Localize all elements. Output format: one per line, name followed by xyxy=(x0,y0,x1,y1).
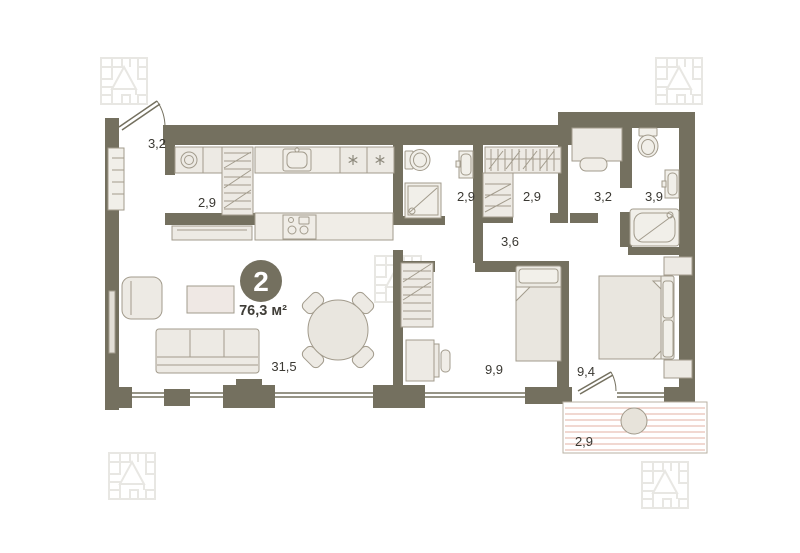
rooms-count: 2 xyxy=(253,266,269,297)
study-chair xyxy=(580,158,607,171)
washing-machine xyxy=(175,147,203,173)
developer-maze-logo-bottom-left xyxy=(109,453,155,499)
stove xyxy=(283,215,316,239)
entrance-door xyxy=(119,101,165,130)
balcony-table xyxy=(621,408,647,434)
study-desk xyxy=(572,128,622,161)
coffee-table xyxy=(187,286,234,313)
area-label-corridor: 3,6 xyxy=(501,234,519,249)
dining-table xyxy=(300,290,375,369)
area-label-bathroom: 2,9 xyxy=(457,189,475,204)
floor-plan: 3,2 2,9 2,9 2,9 3,2 3,9 3,6 31,5 9,9 9,4… xyxy=(0,0,800,553)
toilet xyxy=(405,150,430,171)
bedroom-desk xyxy=(406,340,450,381)
area-label-wardrobe: 2,9 xyxy=(523,189,541,204)
shelf-unit xyxy=(483,173,513,217)
cabinet xyxy=(203,147,222,173)
sofa xyxy=(156,329,259,373)
wardrobe-hallway xyxy=(222,147,253,215)
area-label-bathroom-2: 3,9 xyxy=(645,189,663,204)
shoe-rack xyxy=(108,148,124,210)
toilet-2 xyxy=(638,128,658,157)
developer-maze-logo-bottom-right xyxy=(642,462,688,508)
fridge xyxy=(340,147,394,173)
bathroom-sink-2 xyxy=(662,170,679,198)
total-area: 76,3 м² xyxy=(239,303,287,319)
bathtub xyxy=(630,209,679,246)
sideboard xyxy=(172,226,252,240)
bedroom-wardrobe xyxy=(401,263,433,327)
area-label-living: 31,5 xyxy=(271,359,296,374)
area-label-storage: 2,9 xyxy=(198,195,216,210)
developer-maze-logo-top-right xyxy=(656,58,702,104)
rooms-badge: 2 xyxy=(240,260,282,302)
area-label-hallway: 3,2 xyxy=(148,136,166,151)
floor-plan-drawing: 3,2 2,9 2,9 2,9 3,2 3,9 3,6 31,5 9,9 9,4… xyxy=(0,0,800,553)
kitchen-sink xyxy=(283,148,311,171)
armchair xyxy=(122,277,162,319)
area-label-balcony: 2,9 xyxy=(575,434,593,449)
kitchen-island xyxy=(255,213,393,240)
area-label-study: 3,2 xyxy=(594,189,612,204)
area-label-bedroom-2: 9,4 xyxy=(577,364,595,379)
shower xyxy=(405,183,441,218)
double-bed xyxy=(599,276,674,359)
single-bed xyxy=(516,266,561,361)
developer-maze-logo-top-left xyxy=(101,58,147,104)
bathroom-sink xyxy=(456,151,473,178)
wardrobe-rail xyxy=(485,147,561,173)
tv xyxy=(109,291,115,353)
area-label-bedroom: 9,9 xyxy=(485,362,503,377)
